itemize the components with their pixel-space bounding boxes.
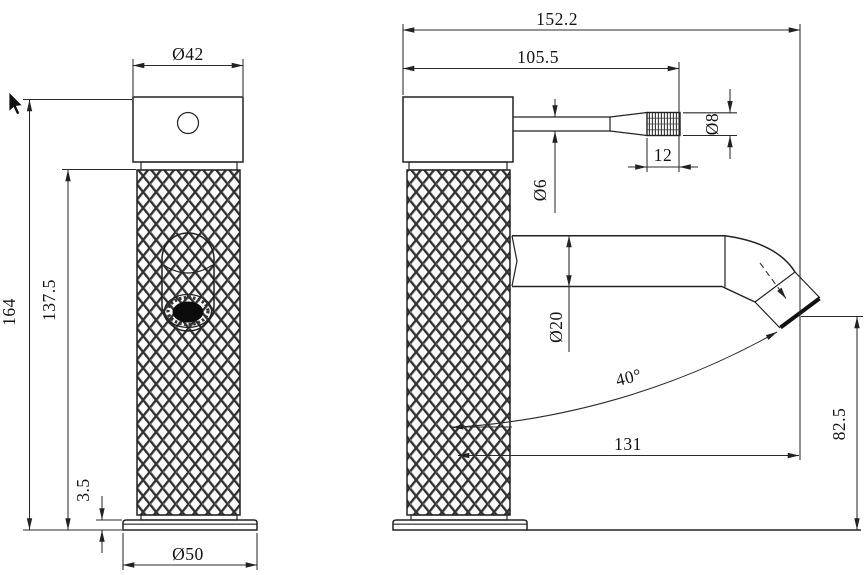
dim-overall-height: 164 [0, 298, 19, 326]
front-aerator-hole [173, 302, 204, 323]
dim-base-diameter: Ø50 [172, 544, 204, 564]
dim-spout-diameter: Ø20 [546, 311, 566, 343]
dim-handle-stem-diameter: Ø6 [530, 179, 550, 201]
dim-handle-knob-diameter: Ø8 [702, 113, 722, 135]
dim-base-height: 3.5 [73, 478, 93, 501]
front-cap-button [178, 113, 199, 134]
dim-spout-angle: 40° [614, 364, 644, 390]
dim-overall-length: 152.2 [536, 9, 578, 29]
side-view [393, 97, 861, 530]
front-neck-band [141, 162, 237, 170]
mouse-cursor-icon [9, 92, 22, 115]
side-neck-band [409, 162, 507, 170]
side-handle-stem [513, 117, 610, 131]
front-knurled-body [137, 170, 240, 515]
side-knurled-body [407, 170, 510, 515]
front-view [123, 97, 257, 530]
dim-outlet-height: 82.5 [829, 408, 849, 441]
dim-cap-diameter: Ø42 [172, 44, 204, 64]
dim-spout-reach: 131 [614, 434, 642, 454]
side-base [393, 520, 527, 530]
dim-handle-reach: 105.5 [517, 47, 559, 67]
technical-drawing-canvas: Ø42 164 137.5 3.5 Ø50 152.2 105.5 Ø6 [0, 0, 866, 575]
drawing-page: Ø42 164 137.5 3.5 Ø50 152.2 105.5 Ø6 [0, 0, 866, 575]
side-handle-taper [610, 113, 647, 136]
side-cap [403, 97, 513, 162]
dim-body-height: 137.5 [39, 279, 59, 321]
front-base [123, 520, 257, 530]
dim-handle-knob-length: 12 [654, 145, 673, 165]
front-cap [133, 97, 243, 162]
